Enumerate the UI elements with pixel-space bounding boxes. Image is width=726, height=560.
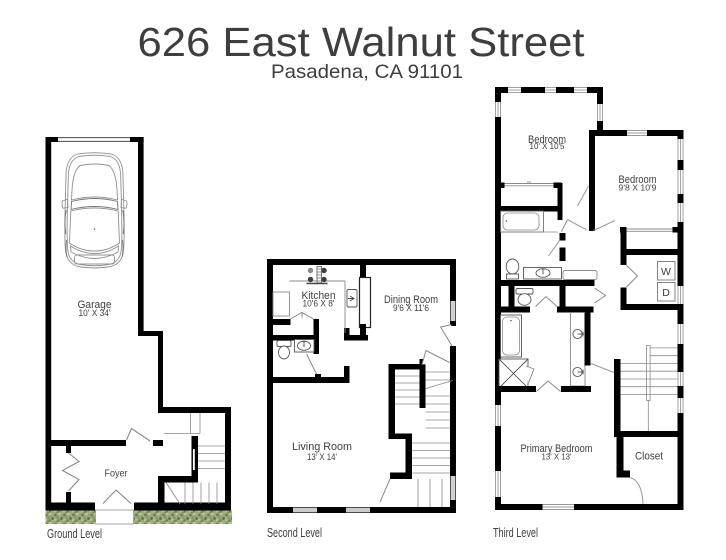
svg-text:10' X 10'5: 10' X 10'5: [530, 141, 565, 151]
svg-text:10'6 X 8': 10'6 X 8': [303, 299, 335, 309]
svg-text:9'8 X 10'9: 9'8 X 10'9: [619, 183, 657, 193]
svg-text:Third Level: Third Level: [493, 526, 538, 540]
svg-text:13' X 13': 13' X 13': [542, 452, 572, 462]
svg-text:Ground Level: Ground Level: [47, 527, 102, 541]
svg-text:Closet: Closet: [635, 451, 663, 463]
svg-text:13' X 14': 13' X 14': [307, 452, 337, 462]
svg-text:10' X 34': 10' X 34': [79, 308, 111, 318]
svg-text:Foyer: Foyer: [105, 468, 128, 480]
svg-text:9'6 X 11'6: 9'6 X 11'6: [393, 303, 429, 313]
svg-text:D: D: [662, 287, 670, 299]
svg-text:Pasadena, CA 91101: Pasadena, CA 91101: [271, 61, 463, 83]
svg-text:W: W: [661, 266, 671, 278]
svg-text:Second Level: Second Level: [267, 526, 322, 540]
svg-text:626 East Walnut Street: 626 East Walnut Street: [138, 19, 586, 65]
